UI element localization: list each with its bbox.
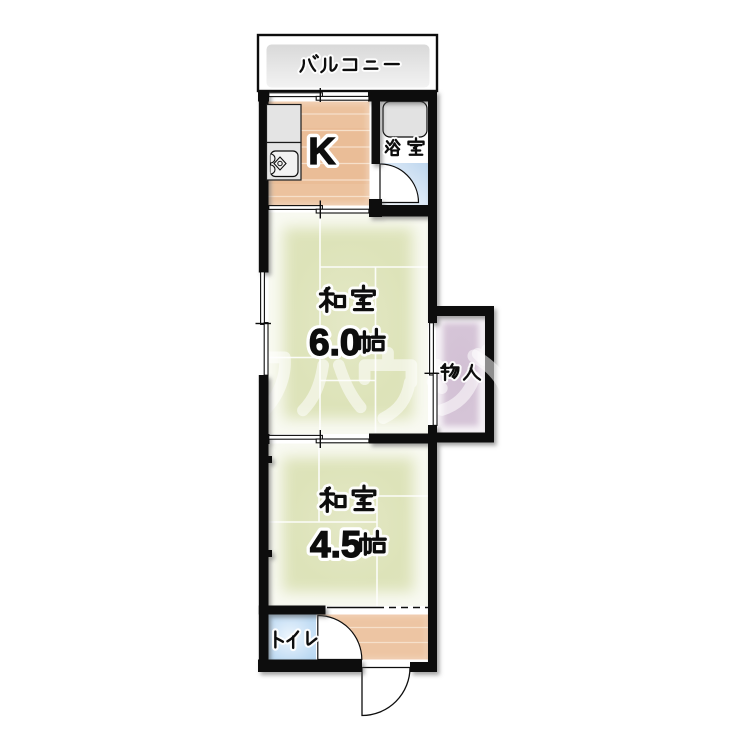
svg-text:4.5: 4.5 — [310, 524, 361, 565]
svg-text:K: K — [308, 131, 336, 173]
svg-text:6.0: 6.0 — [309, 322, 360, 363]
